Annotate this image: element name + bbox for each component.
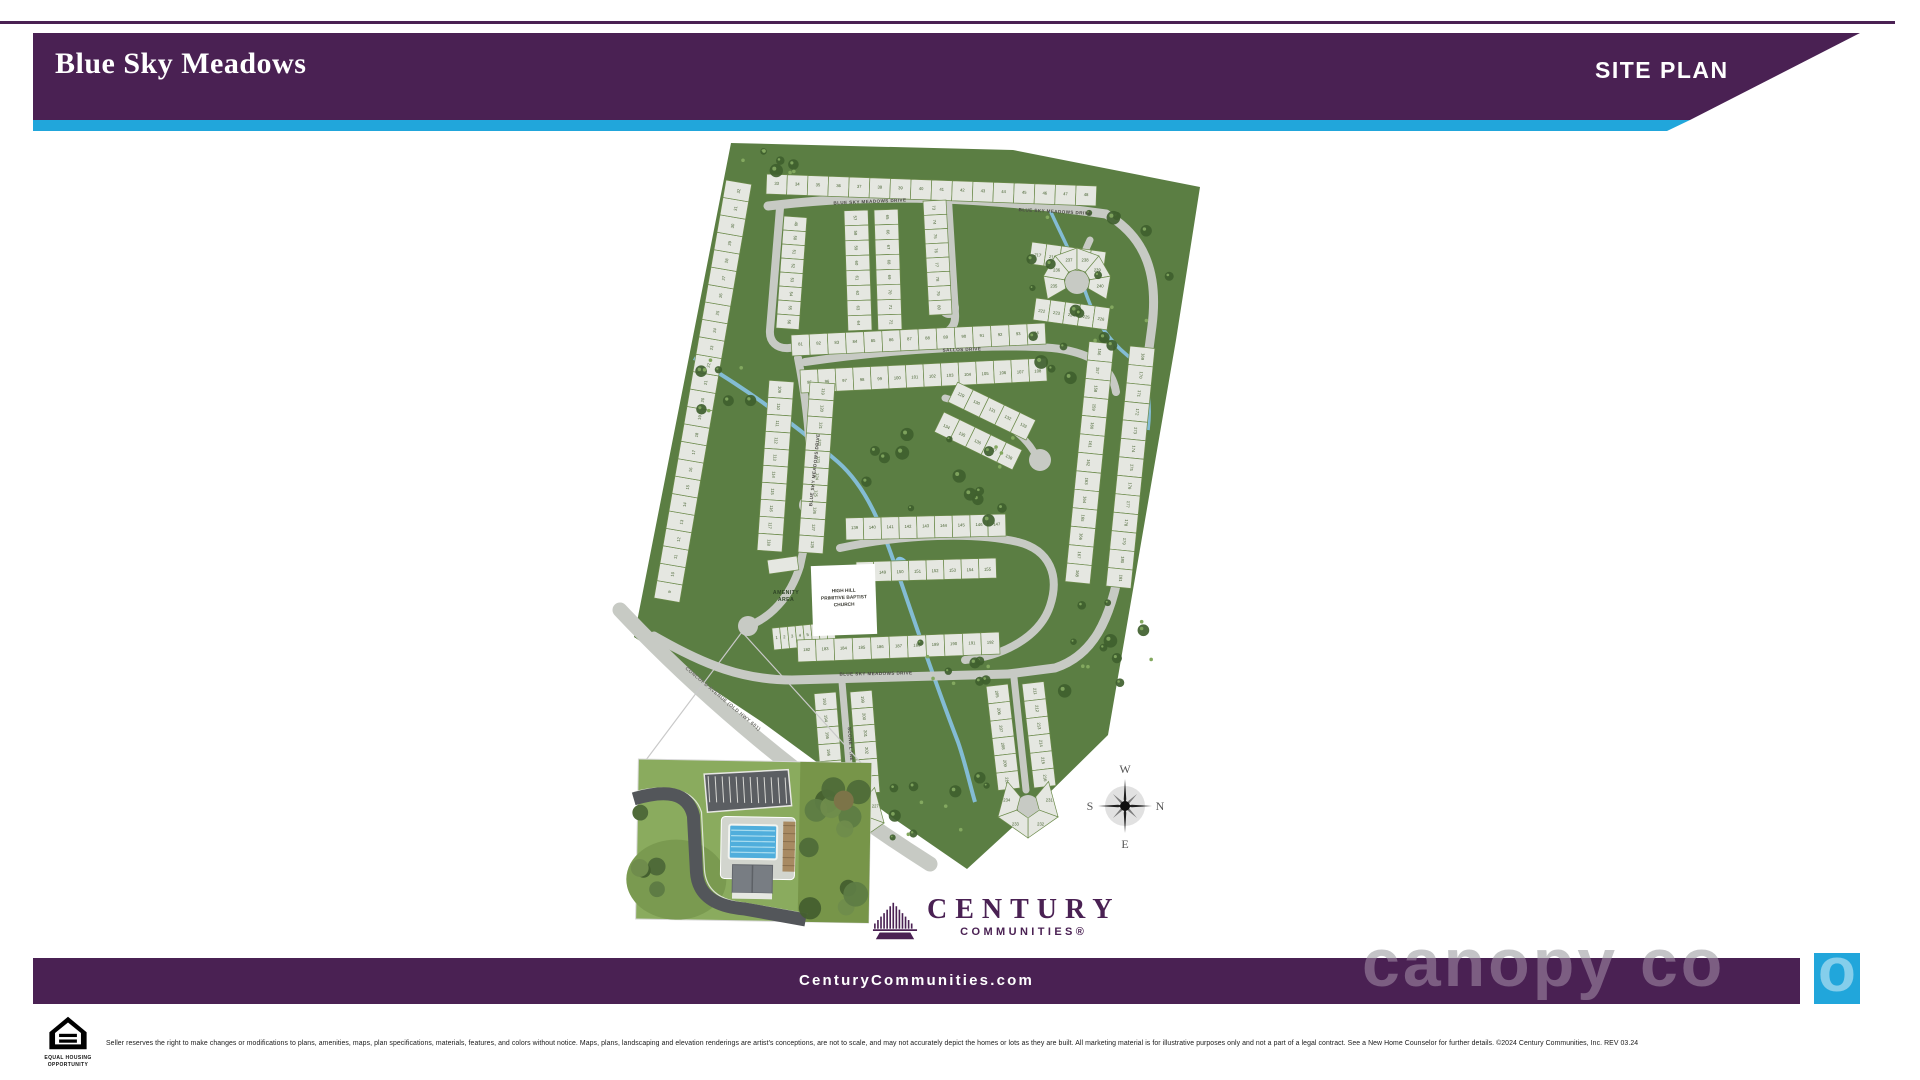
svg-text:S: S — [1087, 799, 1094, 813]
svg-text:191: 191 — [968, 640, 976, 645]
svg-text:159: 159 — [1091, 404, 1097, 412]
svg-text:169: 169 — [1140, 353, 1146, 361]
svg-text:153: 153 — [949, 568, 957, 573]
svg-text:234: 234 — [1003, 798, 1011, 803]
svg-text:41: 41 — [939, 187, 945, 192]
svg-text:103: 103 — [946, 373, 954, 378]
svg-text:222: 222 — [1038, 308, 1046, 314]
svg-text:102: 102 — [929, 373, 937, 378]
svg-text:47: 47 — [1063, 191, 1069, 196]
svg-text:232: 232 — [1037, 821, 1045, 826]
svg-text:101: 101 — [911, 374, 919, 379]
svg-text:139: 139 — [851, 525, 859, 530]
svg-text:175: 175 — [1129, 464, 1135, 472]
cul-de-sac — [1065, 270, 1089, 294]
svg-text:167: 167 — [1076, 551, 1082, 559]
equal-housing-logo: EQUAL HOUSING OPPORTUNITY — [40, 1016, 96, 1068]
svg-text:152: 152 — [931, 568, 939, 573]
svg-text:35: 35 — [816, 182, 822, 187]
svg-text:240: 240 — [1097, 283, 1105, 288]
svg-text:70: 70 — [887, 290, 892, 295]
svg-text:AREA: AREA — [778, 597, 794, 603]
svg-text:66: 66 — [885, 230, 890, 235]
svg-text:165: 165 — [1080, 514, 1086, 522]
svg-text:211: 211 — [1032, 688, 1038, 696]
svg-text:195: 195 — [825, 732, 831, 740]
eho-label-line1: EQUAL HOUSING — [40, 1055, 96, 1062]
svg-text:117: 117 — [767, 522, 773, 530]
svg-text:187: 187 — [895, 643, 903, 648]
svg-text:61: 61 — [855, 276, 860, 281]
svg-text:189: 189 — [932, 642, 940, 647]
watermark-canopy-light: canopy co — [1350, 958, 1800, 1004]
watermark-accent-block: o — [1814, 953, 1860, 1004]
svg-text:158: 158 — [1093, 385, 1099, 393]
svg-text:238: 238 — [1082, 257, 1090, 262]
svg-text:233: 233 — [1012, 821, 1020, 826]
svg-text:60: 60 — [854, 261, 859, 266]
svg-text:104: 104 — [964, 372, 972, 377]
svg-text:202: 202 — [864, 747, 870, 755]
svg-text:213: 213 — [1036, 722, 1042, 730]
svg-text:177: 177 — [1125, 501, 1131, 509]
svg-text:146: 146 — [975, 522, 983, 527]
svg-text:212: 212 — [1034, 705, 1040, 713]
amenity-inset — [626, 759, 872, 923]
svg-text:63: 63 — [856, 306, 861, 311]
svg-text:CHURCH: CHURCH — [834, 602, 856, 609]
svg-text:183: 183 — [821, 646, 829, 651]
svg-text:71: 71 — [888, 305, 893, 310]
svg-text:161: 161 — [1087, 440, 1093, 448]
svg-text:109: 109 — [777, 386, 783, 394]
svg-text:166: 166 — [1078, 533, 1084, 541]
svg-text:235: 235 — [1050, 283, 1058, 288]
svg-text:N: N — [1156, 799, 1165, 813]
svg-text:151: 151 — [914, 569, 922, 574]
svg-text:65: 65 — [885, 215, 890, 220]
svg-text:170: 170 — [1138, 371, 1144, 379]
svg-text:105: 105 — [981, 371, 989, 376]
site-plan-page: Blue Sky Meadows SITE PLAN 1234567891011… — [0, 0, 1920, 1080]
svg-text:140: 140 — [869, 525, 877, 530]
svg-text:154: 154 — [966, 567, 974, 572]
svg-text:180: 180 — [1120, 556, 1126, 564]
svg-text:142: 142 — [904, 524, 912, 529]
brand-name: CENTURY — [927, 896, 1120, 924]
svg-text:200: 200 — [861, 713, 867, 721]
century-building-icon — [872, 898, 918, 944]
svg-text:110: 110 — [776, 403, 782, 411]
svg-text:39: 39 — [898, 185, 904, 190]
svg-text:AMENITY: AMENITY — [773, 590, 799, 596]
svg-text:143: 143 — [922, 523, 930, 528]
svg-text:45: 45 — [1022, 190, 1028, 195]
svg-text:174: 174 — [1131, 445, 1137, 453]
svg-text:W: W — [1119, 762, 1131, 776]
svg-text:HIGH HILL: HIGH HILL — [832, 588, 856, 595]
svg-text:164: 164 — [1082, 496, 1088, 504]
svg-text:68: 68 — [886, 260, 891, 265]
svg-text:184: 184 — [840, 645, 848, 650]
svg-text:178: 178 — [1123, 519, 1129, 527]
disclaimer-text: Seller reserves the right to make change… — [106, 1040, 1666, 1047]
svg-text:193: 193 — [822, 698, 828, 706]
svg-text:208: 208 — [1000, 742, 1006, 750]
svg-text:214: 214 — [1038, 740, 1044, 748]
svg-text:223: 223 — [1053, 310, 1061, 316]
svg-text:120: 120 — [819, 405, 825, 413]
svg-text:215: 215 — [1040, 757, 1046, 765]
svg-text:171: 171 — [1136, 390, 1142, 398]
svg-text:48: 48 — [1084, 192, 1090, 197]
svg-text:149: 149 — [879, 570, 887, 575]
svg-text:57: 57 — [853, 216, 858, 221]
svg-text:201: 201 — [863, 730, 869, 738]
compass-rose: WNES — [1087, 762, 1165, 851]
svg-text:116: 116 — [769, 505, 775, 513]
svg-text:185: 185 — [858, 645, 866, 650]
svg-text:168: 168 — [1074, 570, 1080, 578]
svg-text:107: 107 — [1017, 369, 1025, 374]
svg-text:E: E — [1121, 837, 1128, 851]
svg-text:111: 111 — [775, 420, 780, 427]
svg-text:173: 173 — [1133, 427, 1139, 435]
svg-text:160: 160 — [1089, 422, 1095, 430]
svg-text:176: 176 — [1127, 482, 1133, 490]
svg-text:209: 209 — [1002, 760, 1008, 768]
svg-text:36: 36 — [836, 183, 842, 188]
svg-text:33: 33 — [774, 181, 780, 186]
equal-housing-house-icon — [46, 1016, 90, 1050]
cul-de-sac — [1029, 449, 1051, 471]
svg-text:227: 227 — [872, 804, 880, 809]
svg-text:192: 192 — [987, 640, 995, 645]
svg-text:186: 186 — [877, 644, 885, 649]
svg-text:181: 181 — [1118, 574, 1124, 582]
svg-text:58: 58 — [853, 231, 858, 236]
svg-text:144: 144 — [940, 523, 948, 528]
svg-text:216: 216 — [1042, 774, 1048, 782]
svg-text:43: 43 — [981, 188, 987, 193]
svg-text:205: 205 — [994, 690, 1000, 698]
svg-text:126: 126 — [812, 507, 818, 515]
svg-text:59: 59 — [854, 246, 859, 251]
svg-text:156: 156 — [1097, 348, 1103, 356]
svg-text:207: 207 — [998, 725, 1004, 733]
svg-text:106: 106 — [999, 370, 1007, 375]
svg-text:121: 121 — [818, 422, 824, 430]
svg-text:34: 34 — [795, 181, 801, 186]
svg-text:226: 226 — [1097, 316, 1105, 322]
svg-text:69: 69 — [887, 275, 892, 280]
svg-text:118: 118 — [766, 539, 772, 547]
svg-text:182: 182 — [803, 647, 811, 652]
svg-text:108: 108 — [1034, 368, 1042, 373]
svg-text:163: 163 — [1084, 477, 1090, 485]
eho-label-line2: OPPORTUNITY — [40, 1062, 96, 1069]
svg-text:145: 145 — [958, 522, 966, 527]
svg-text:157: 157 — [1095, 367, 1101, 375]
svg-text:38: 38 — [877, 184, 883, 189]
svg-text:128: 128 — [810, 541, 816, 549]
watermark-canopy-gray: canopy co — [1350, 918, 1805, 958]
svg-text:196: 196 — [826, 749, 832, 757]
svg-text:172: 172 — [1134, 408, 1140, 416]
svg-text:206: 206 — [996, 708, 1002, 716]
svg-text:199: 199 — [860, 696, 866, 704]
svg-text:119: 119 — [820, 388, 826, 396]
svg-text:72: 72 — [888, 320, 893, 325]
svg-text:190: 190 — [950, 641, 958, 646]
svg-text:40: 40 — [919, 186, 925, 191]
svg-text:46: 46 — [1042, 190, 1048, 195]
svg-text:42: 42 — [960, 187, 966, 192]
svg-text:64: 64 — [856, 321, 861, 326]
svg-text:37: 37 — [857, 184, 863, 189]
svg-text:155: 155 — [984, 567, 992, 572]
brand-subtitle: COMMUNITIES® — [927, 926, 1120, 938]
svg-text:100: 100 — [894, 375, 902, 380]
svg-text:127: 127 — [811, 524, 817, 532]
svg-text:237: 237 — [1065, 257, 1073, 262]
svg-text:62: 62 — [855, 291, 860, 296]
svg-text:179: 179 — [1121, 537, 1127, 545]
svg-text:113: 113 — [772, 454, 778, 462]
svg-text:150: 150 — [896, 569, 904, 574]
svg-text:112: 112 — [773, 437, 779, 445]
svg-text:162: 162 — [1086, 459, 1092, 467]
svg-text:115: 115 — [770, 488, 776, 496]
svg-text:141: 141 — [887, 524, 895, 529]
svg-text:67: 67 — [886, 245, 891, 250]
svg-text:236: 236 — [1053, 268, 1061, 273]
church-parcel: HIGH HILLPRIMITIVE BAPTISTCHURCH — [811, 564, 877, 636]
svg-text:231: 231 — [1046, 798, 1054, 803]
svg-text:114: 114 — [771, 471, 777, 479]
svg-text:44: 44 — [1001, 189, 1007, 194]
century-communities-logo: CENTURY COMMUNITIES® — [872, 896, 1120, 944]
